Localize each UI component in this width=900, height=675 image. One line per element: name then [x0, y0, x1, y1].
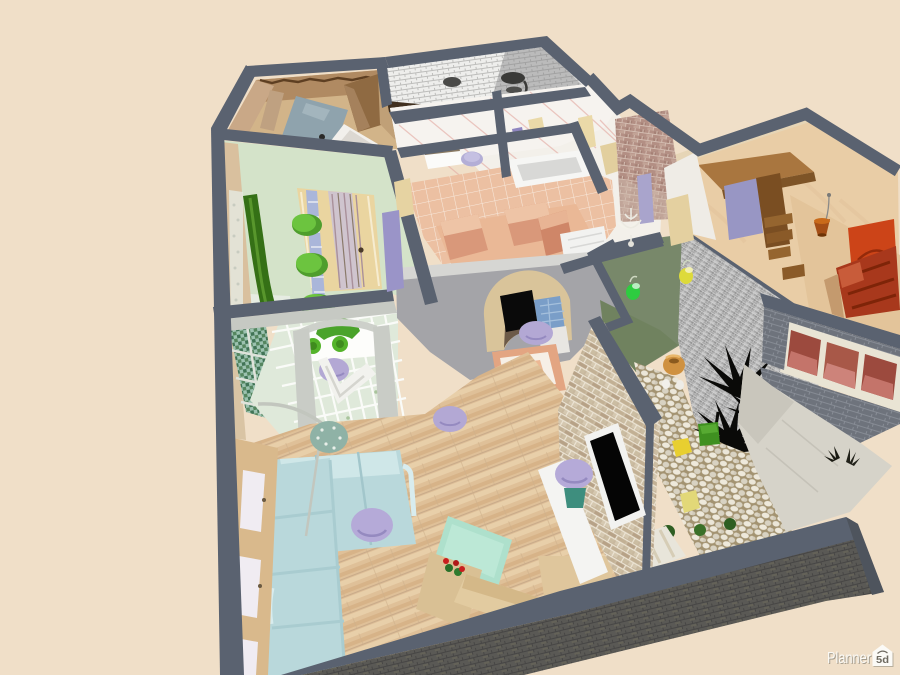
svg-text:5d: 5d [876, 655, 889, 666]
svg-text:Planner: Planner [827, 650, 871, 667]
